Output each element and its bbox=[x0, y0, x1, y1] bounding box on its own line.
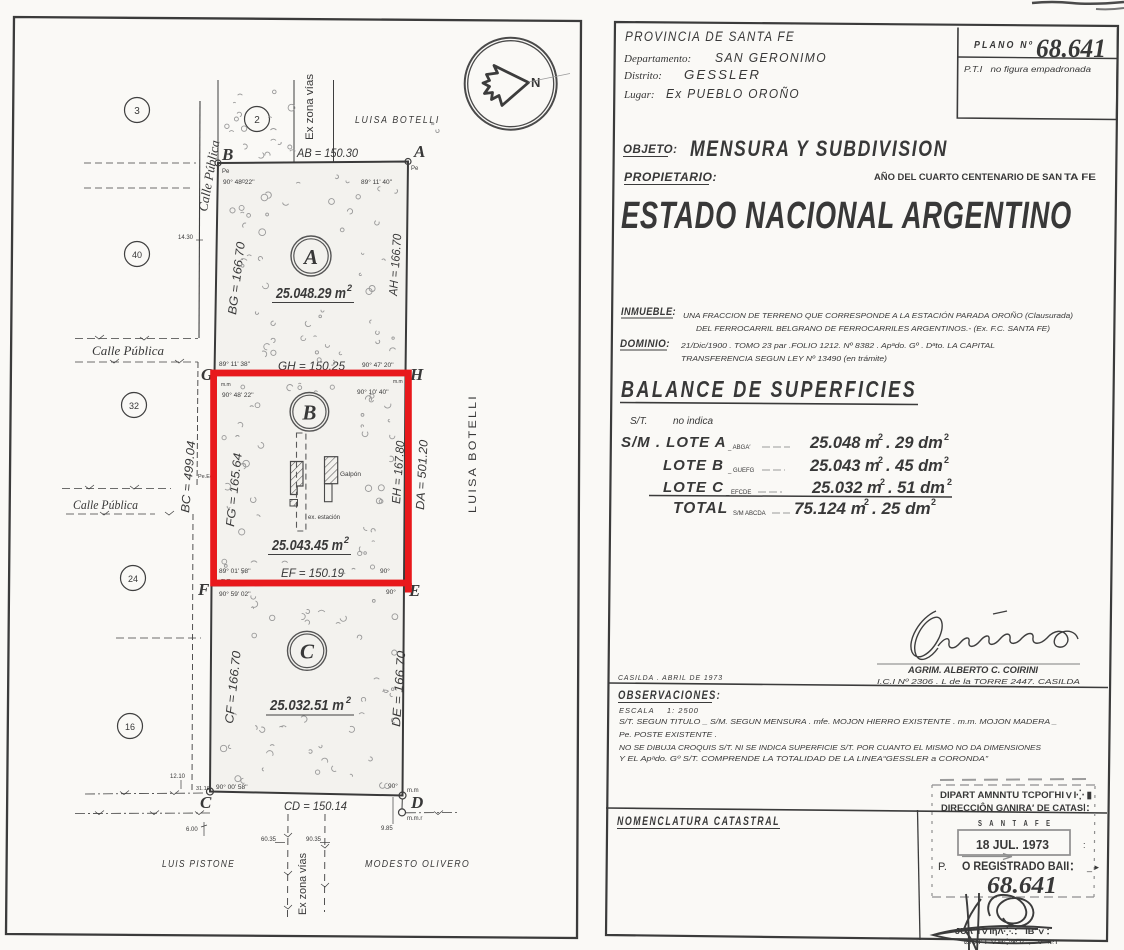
svg-text:_ EFCDE: _ EFCDE bbox=[725, 490, 751, 496]
svg-text:LUIS PISTONE: LUIS PISTONE bbox=[162, 858, 235, 870]
svg-text:Ex zona vías: Ex zona vías bbox=[297, 853, 309, 915]
svg-text:Calle Pública: Calle Pública bbox=[92, 343, 164, 358]
svg-text:14.30: 14.30 bbox=[178, 235, 194, 241]
svg-text:.: . bbox=[941, 479, 946, 497]
svg-text:m.m: m.m bbox=[221, 382, 231, 388]
svg-text:ESCALA 1: 2500: ESCALA 1: 2500 bbox=[619, 706, 699, 715]
svg-text:MODESTO OLIVERO: MODESTO OLIVERO bbox=[365, 858, 470, 870]
svg-text:BC = 499.04: BC = 499.04 bbox=[178, 440, 198, 513]
svg-text:S/T. SEGUN TITULO _ S/M. SEGU: S/T. SEGUN TITULO _ S/M. SEGUN MENSURA .… bbox=[619, 717, 1057, 726]
svg-text:2: 2 bbox=[878, 455, 883, 465]
svg-text:68.641: 68.641 bbox=[1036, 34, 1106, 63]
svg-text:LOTE C: LOTE C bbox=[663, 479, 724, 496]
svg-text:PROPIETARIO:: PROPIETARIO: bbox=[624, 170, 717, 184]
svg-text:. 51 dm: . 51 dm bbox=[888, 479, 945, 497]
svg-text:m.m: m.m bbox=[407, 788, 419, 794]
svg-text:AGRIM. ALBERTO C. COIRINI: AGRIM. ALBERTO C. COIRINI bbox=[907, 665, 1039, 675]
svg-text:25.032.51 m: 25.032.51 m bbox=[269, 698, 344, 714]
svg-text:.: . bbox=[938, 434, 943, 452]
svg-text:60.35: 60.35 bbox=[261, 837, 277, 843]
svg-text:LOTE B: LOTE B bbox=[663, 457, 724, 474]
svg-text:CASILDA . ABRIL DE 1973: CASILDA . ABRIL DE 1973 bbox=[618, 673, 723, 682]
svg-text:25.043.45 m: 25.043.45 m bbox=[271, 538, 343, 554]
svg-text:EF = 150.19: EF = 150.19 bbox=[281, 566, 344, 580]
svg-text:INMUEBLE:: INMUEBLE: bbox=[621, 306, 676, 318]
svg-text:ESTADO NACIONAL ARGENTINO: ESTADO NACIONAL ARGENTINO bbox=[621, 195, 1072, 237]
svg-text:2: 2 bbox=[931, 497, 936, 507]
svg-text:S/T.: S/T. bbox=[630, 416, 647, 427]
svg-text:JUΛ′ ІｖІƞΛ⁛.： ІΒ′ｖ：: JUΛ′ ІｖІƞΛ⁛.： ІΒ′ｖ： bbox=[955, 926, 1055, 936]
svg-text:25.043 m: 25.043 m bbox=[809, 457, 880, 475]
svg-text:32: 32 bbox=[129, 401, 139, 411]
svg-text:A: A bbox=[302, 245, 318, 269]
svg-text:ex. estación: ex. estación bbox=[308, 515, 340, 521]
svg-text:NO SE DIBUJA CROQUIS S/T. NI: NO SE DIBUJA CROQUIS S/T. NI SE INDICA S… bbox=[619, 743, 1041, 752]
svg-text:2: 2 bbox=[880, 477, 885, 487]
svg-text:21/Dic/1900 . TOMO 23 par .FOL: 21/Dic/1900 . TOMO 23 par .FOLIO 1212. N… bbox=[680, 341, 995, 350]
svg-text:Departamento:: Departamento: bbox=[623, 53, 691, 65]
svg-text:6.00: 6.00 bbox=[186, 827, 198, 833]
svg-text:DA = 501.20: DA = 501.20 bbox=[413, 439, 431, 510]
svg-text:90° 00' 58'': 90° 00' 58'' bbox=[216, 783, 248, 791]
svg-text:A: A bbox=[413, 142, 425, 161]
svg-text:Ex PUEBLO OROÑO: Ex PUEBLO OROÑO bbox=[666, 86, 800, 101]
svg-text:89° 01' 58'': 89° 01' 58'' bbox=[219, 567, 251, 575]
svg-text:Pe: Pe bbox=[411, 166, 419, 172]
svg-text:25.032 m: 25.032 m bbox=[811, 479, 882, 497]
svg-text:Calle Pública: Calle Pública bbox=[73, 497, 138, 512]
svg-text:25.048.29 m: 25.048.29 m bbox=[275, 286, 346, 302]
svg-text:16: 16 bbox=[125, 722, 135, 732]
svg-text:. 29 dm: . 29 dm bbox=[886, 434, 943, 452]
svg-text:90°: 90° bbox=[380, 567, 390, 575]
svg-text:.: . bbox=[926, 499, 931, 518]
svg-text:LUISA BOTELLI: LUISA BOTELLI bbox=[467, 394, 479, 513]
svg-text:PROVINCIA DE SANTA FE: PROVINCIA DE SANTA FE bbox=[625, 29, 795, 44]
svg-text:2: 2 bbox=[947, 477, 952, 487]
svg-text:_ GUEFG: _ GUEFG bbox=[727, 468, 755, 474]
svg-text:90° 48' 22'': 90° 48' 22'' bbox=[223, 178, 255, 186]
svg-text:I.C.I Nº 2306 . L de la TORRE: I.C.I Nº 2306 . L de la TORRE 2447. CASI… bbox=[877, 677, 1080, 686]
svg-text:S/M ABCDA: S/M ABCDA bbox=[733, 511, 766, 517]
svg-text:40: 40 bbox=[132, 250, 142, 260]
svg-text:GESSLER: GESSLER bbox=[684, 67, 761, 82]
svg-text:TRANSFERENCIA SEGUN LEY Nº 134: TRANSFERENCIA SEGUN LEY Nº 13490 (en trá… bbox=[681, 354, 888, 363]
svg-text:TA FE: TA FE bbox=[1064, 172, 1096, 183]
svg-text:AB = 150.30: AB = 150.30 bbox=[296, 146, 358, 160]
svg-text::: : bbox=[1083, 840, 1086, 850]
svg-text:DEL FERROCARRIL BELGRANO DE FE: DEL FERROCARRIL BELGRANO DE FERROCARRILE… bbox=[696, 324, 1051, 333]
svg-text:LUISA BOTELLI: LUISA BOTELLI bbox=[355, 114, 440, 126]
svg-text:C: C bbox=[300, 640, 315, 664]
svg-text:2: 2 bbox=[878, 432, 883, 442]
svg-text:_ ▸: _ ▸ bbox=[1086, 862, 1100, 872]
svg-text:Ex zona vías: Ex zona vías bbox=[304, 73, 316, 140]
svg-text:89° 11' 40'': 89° 11' 40'' bbox=[361, 178, 392, 186]
svg-text:TOTAL: TOTAL bbox=[673, 500, 728, 517]
svg-text:DIRECCIÔN GΛNІRA′ DE CATASⅼ：: DIRECCIÔN GΛNІRA′ DE CATASⅼ： bbox=[941, 802, 1095, 813]
svg-text:C: C bbox=[200, 793, 212, 812]
svg-text:.: . bbox=[938, 457, 943, 475]
svg-text:18 JUL. 1973: 18 JUL. 1973 bbox=[976, 838, 1049, 852]
svg-text:25.048 m: 25.048 m bbox=[809, 434, 880, 452]
svg-text:90°: 90° bbox=[388, 782, 398, 790]
svg-text:24: 24 bbox=[128, 574, 138, 584]
svg-text:Y EL Apᵃdo. Gº S/T. COMPREN: Y EL Apᵃdo. Gº S/T. COMPRENDE LA TOTALID… bbox=[619, 754, 989, 763]
svg-text:Galpón: Galpón bbox=[340, 471, 361, 478]
svg-text:BALANCE DE SUPERFICIES: BALANCE DE SUPERFICIES bbox=[621, 376, 917, 402]
svg-text:OBSERVACIONES:: OBSERVACIONES: bbox=[618, 690, 721, 702]
svg-text:F: F bbox=[197, 580, 210, 599]
svg-text:P.: P. bbox=[938, 861, 947, 873]
svg-text:2: 2 bbox=[345, 695, 351, 705]
svg-text:90°: 90° bbox=[386, 588, 396, 596]
svg-text:PLANO Nº: PLANO Nº bbox=[974, 39, 1034, 51]
svg-text:90° 47' 20'': 90° 47' 20'' bbox=[362, 361, 394, 369]
svg-text:MENSURA Y SUBDIVISION: MENSURA Y SUBDIVISION bbox=[690, 136, 948, 161]
svg-text:90.35: 90.35 bbox=[306, 837, 322, 843]
svg-text:UNA FRACCION DE TERRENO QUE CO: UNA FRACCION DE TERRENO QUE CORRESPONDE … bbox=[683, 311, 1074, 320]
svg-text:. 45 dm: . 45 dm bbox=[886, 457, 943, 475]
svg-text:D: D bbox=[410, 793, 423, 812]
svg-text:3: 3 bbox=[134, 106, 140, 117]
svg-text:B: B bbox=[221, 145, 233, 164]
svg-text:no indica: no indica bbox=[673, 416, 713, 427]
svg-text:Pe: Pe bbox=[222, 169, 230, 175]
svg-text:N: N bbox=[531, 75, 540, 90]
svg-text:S A N T A F E: S A N T A F E bbox=[978, 819, 1053, 828]
svg-text:2: 2 bbox=[343, 535, 349, 545]
svg-text:90° 10' 40'': 90° 10' 40'' bbox=[357, 388, 389, 396]
svg-text:AÑO DEL CUARTO CENTENARIO DE S: AÑO DEL CUARTO CENTENARIO DE SAN bbox=[874, 172, 1062, 183]
svg-text:NOMENCLATURA CATASTRAL: NOMENCLATURA CATASTRAL bbox=[617, 816, 780, 828]
svg-text:2: 2 bbox=[864, 497, 869, 507]
svg-text:P.T.I no figura empadronada: P.T.I no figura empadronada bbox=[964, 65, 1092, 74]
svg-text:OBJETO:: OBJETO: bbox=[623, 144, 677, 156]
svg-text:90° 59' 02'': 90° 59' 02'' bbox=[219, 590, 251, 598]
svg-text:75.124 m: 75.124 m bbox=[794, 499, 866, 518]
svg-text:SAN GERONIMO: SAN GERONIMO bbox=[715, 50, 827, 65]
svg-text:12.10: 12.10 bbox=[170, 774, 186, 780]
svg-text:31.10: 31.10 bbox=[196, 786, 210, 792]
svg-text:90° 48' 22'': 90° 48' 22'' bbox=[222, 391, 254, 399]
svg-text:DOMINIO:: DOMINIO: bbox=[620, 338, 670, 350]
svg-text:. 25 dm: . 25 dm bbox=[872, 499, 931, 518]
svg-text:Distrito:: Distrito: bbox=[623, 70, 662, 82]
svg-text:DІPART AMΝNTU TCPOΓΗІｖІ⁛ ▮: DІPART AMΝNTU TCPOΓΗІｖІ⁛ ▮ bbox=[940, 789, 1092, 801]
svg-text:S/M . LOTE A: S/M . LOTE A bbox=[621, 434, 727, 451]
svg-text:O REGISTRADO BAІІ：: O REGISTRADO BAІІ： bbox=[962, 861, 1080, 873]
svg-text:2: 2 bbox=[254, 115, 260, 126]
svg-text:9.85: 9.85 bbox=[381, 826, 393, 832]
svg-text:Lugar:: Lugar: bbox=[623, 89, 655, 101]
svg-text:2: 2 bbox=[944, 455, 949, 465]
svg-text:2: 2 bbox=[944, 432, 949, 442]
svg-text:m.m: m.m bbox=[393, 379, 403, 385]
svg-text:_ ABGA′: _ ABGA′ bbox=[727, 445, 751, 451]
svg-text:Pe. POSTE EXISTENTE .: Pe. POSTE EXISTENTE . bbox=[619, 730, 717, 739]
svg-text:⌀І※І′ І ｖΗ⁛※ｖ′：ｖ ※І′: ⌀І※І′ І ｖΗ⁛※ｖ′：ｖ ※І′ bbox=[964, 937, 1060, 946]
svg-text:B: B bbox=[301, 401, 316, 425]
svg-text:CD = 150.14: CD = 150.14 bbox=[284, 799, 347, 813]
svg-text:89° 11' 38'': 89° 11' 38'' bbox=[219, 360, 250, 368]
svg-text:m.m.r: m.m.r bbox=[407, 816, 422, 822]
svg-text:2: 2 bbox=[346, 283, 352, 293]
